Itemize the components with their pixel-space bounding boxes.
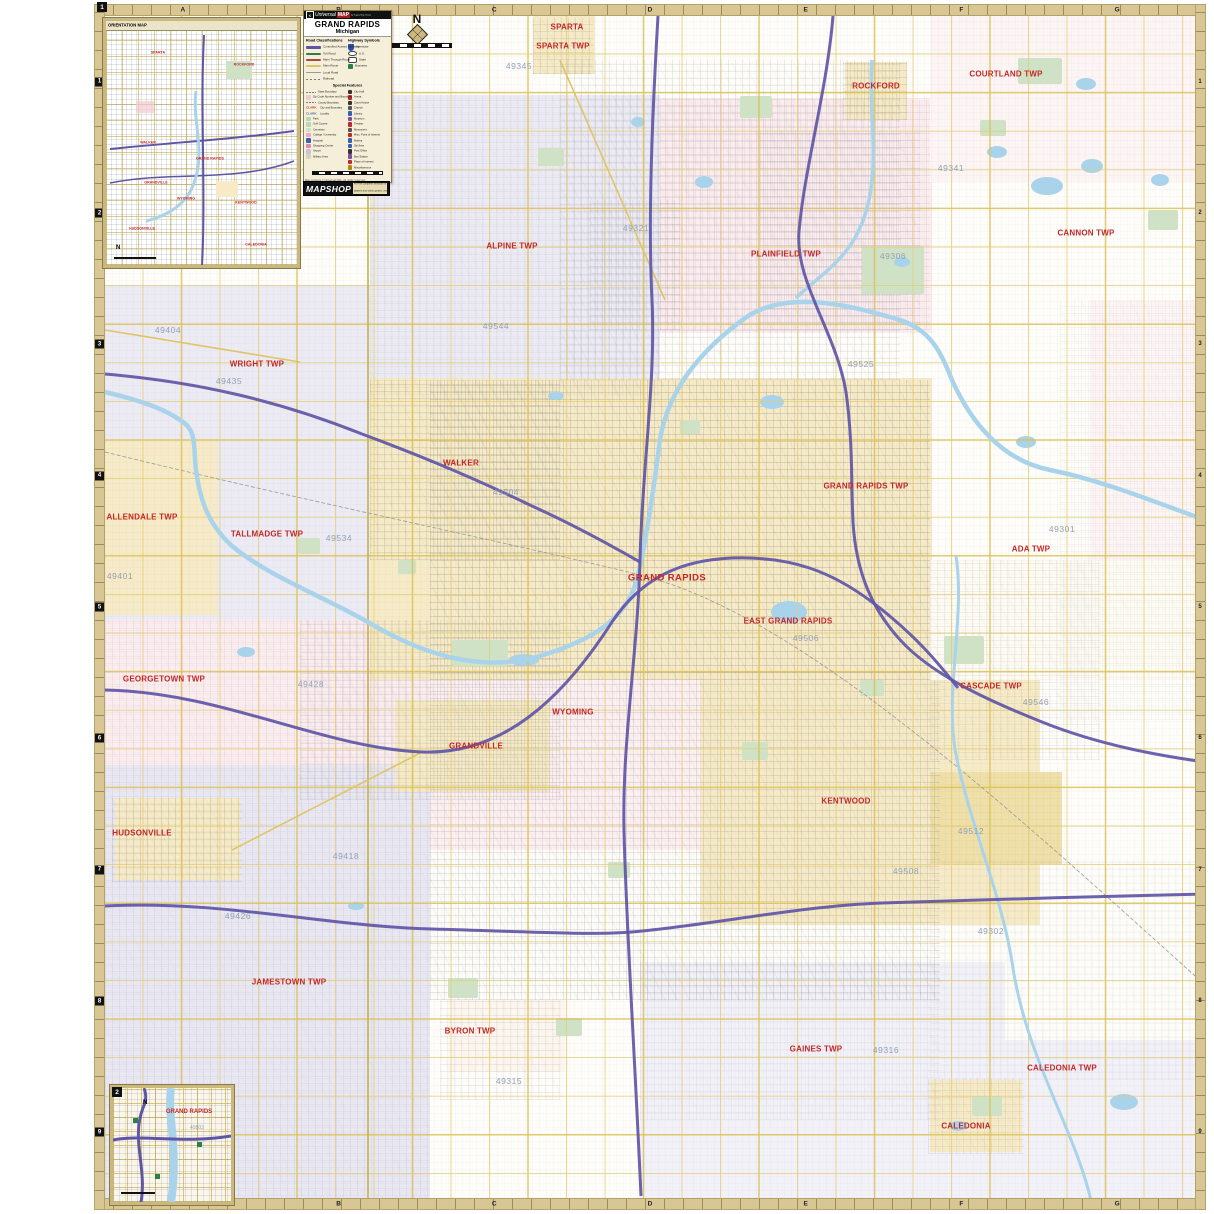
special-feature-label: Marina — [354, 139, 362, 142]
feature-chip — [348, 133, 353, 138]
feature-chip — [348, 101, 353, 106]
zip-label: 49401 — [107, 571, 133, 581]
feature-chip — [348, 128, 353, 133]
mapshop-bar: MAPSHOP For the complete selection of ma… — [303, 181, 390, 196]
feature-chip — [348, 160, 353, 165]
feature-chip — [348, 138, 353, 143]
road-swatch — [306, 53, 321, 55]
feature-chip — [306, 154, 311, 159]
feature-chip — [306, 149, 311, 154]
place-label: HUDSONVILLE — [112, 829, 172, 838]
grid-number: 9 — [1198, 1129, 1201, 1135]
brand-tagline: by Kappa Map Group — [351, 14, 371, 17]
road-class-row: Railroad — [306, 76, 348, 82]
orientation-place-label: SPARTA — [151, 51, 165, 55]
downtown-scale-bar — [121, 1192, 155, 1194]
grid-letter: F — [959, 7, 963, 14]
grid-letter: D — [648, 1201, 653, 1208]
road-class-label: Main Through Route — [323, 58, 350, 61]
grid-number: 7 — [1198, 867, 1201, 873]
roads-header: Road Classifications — [306, 39, 332, 43]
grand-river — [105, 302, 1205, 663]
compass-rose-icon — [406, 24, 427, 45]
special-feature-label: Theater — [354, 123, 363, 126]
grid-number: 2 — [1198, 210, 1201, 216]
freeway-i96-west — [105, 374, 640, 562]
zip-label: 49302 — [978, 926, 1004, 936]
place-label: CALEDONIA — [941, 1122, 990, 1131]
grid-letter: E — [804, 1201, 808, 1208]
special-feature-label: Ski Area — [354, 145, 364, 148]
grid-number: 1 — [1198, 79, 1201, 85]
special-feature-label: Bus Station — [354, 155, 368, 158]
orientation-place-label: WALKER — [140, 141, 156, 145]
feature-chip — [348, 154, 353, 159]
zip-label: 49426 — [225, 911, 251, 921]
special-feature-label: Library — [354, 112, 362, 115]
special-features-right: City HallArenaCourt HouseChurchLibraryMu… — [348, 89, 390, 170]
orientation-scale-bar — [114, 257, 156, 259]
grid-letter: C — [492, 7, 497, 14]
highway-symbol-label: U.S. — [359, 52, 365, 55]
sample-name-chip: CLARK — [306, 112, 312, 115]
inset-tab-1: 1 — [97, 2, 107, 12]
grid-number: 6 — [1198, 735, 1201, 741]
place-label: ALLENDALE TWP — [106, 513, 177, 522]
zip-label: 49534 — [326, 533, 352, 543]
road-class-label: Local Road — [323, 71, 338, 74]
feature-chip — [306, 138, 311, 143]
special-feature-label: Zip Code Number and Boundary — [313, 96, 352, 99]
road-swatch — [306, 65, 321, 67]
orientation-inset-title: ORIENTATION MAP — [108, 23, 147, 27]
zip-label: 49418 — [333, 851, 359, 861]
special-feature-label: Place of Interest — [354, 161, 374, 164]
zip-label: 49546 — [1023, 697, 1049, 707]
zip-label: 49508 — [893, 866, 919, 876]
zip-label: 49306 — [880, 251, 906, 261]
mapshop-info-line: For the complete selection of maps, — [354, 183, 367, 186]
grid-number: 8 — [1198, 998, 1201, 1004]
zip-label: 49301 — [1049, 524, 1075, 534]
zip-label: 49345 — [506, 61, 532, 71]
special-feature-label: College / University — [313, 134, 336, 137]
thornapple-river — [952, 556, 1092, 1205]
downtown-zip-label: 49503 — [190, 1125, 204, 1131]
grid-letter: A — [180, 7, 185, 14]
arterial-diagonal — [105, 330, 300, 362]
legend-title: GRAND RAPIDS Michigan — [304, 19, 391, 37]
feature-chip — [348, 144, 353, 149]
place-label: ROCKFORD — [852, 82, 900, 91]
feature-chip — [348, 117, 353, 122]
orientation-place-label: HUDSONVILLE — [129, 227, 155, 231]
map-subtitle: Michigan — [304, 29, 391, 35]
grid-number: 3 — [1198, 341, 1201, 347]
brand-name: Universal — [315, 12, 336, 18]
grid-number: 5 — [95, 603, 104, 612]
north-arrow: N — [404, 12, 430, 42]
highway-symbol-label: Business — [355, 65, 367, 68]
downtown-north: N — [143, 1100, 147, 1106]
feature-chip — [348, 90, 353, 95]
grid-letter: D — [648, 7, 653, 14]
place-label: ADA TWP — [1012, 545, 1050, 554]
grid-number: 7 — [95, 865, 104, 874]
grid-number: 9 — [95, 1128, 104, 1137]
special-feature-label: Museum — [354, 118, 364, 121]
place-label: GRANDVILLE — [449, 742, 503, 751]
special-feature-label: Shopping Center — [313, 145, 333, 148]
sample-name-chip: CLARK — [306, 107, 312, 110]
orientation-place-label: KENTWOOD — [235, 201, 256, 205]
feature-chip — [348, 122, 353, 127]
grid-number: 4 — [95, 471, 104, 480]
zip-label: 49316 — [873, 1045, 899, 1055]
place-label: GAINES TWP — [790, 1045, 843, 1054]
orientation-place-label: GRANDVILLE — [144, 181, 167, 185]
mapshop-info-line: atlases and travel guides, visit — [354, 190, 367, 193]
special-feature-label: Park — [313, 118, 319, 121]
place-label: WRIGHT TWP — [230, 360, 284, 369]
place-label: GEORGETOWN TWP — [123, 675, 205, 684]
feature-chip — [306, 122, 311, 127]
orientation-inset-header: ORIENTATION MAP — [106, 21, 297, 31]
brand-map: MAP — [337, 12, 350, 18]
orientation-inset: ORIENTATION MAP SPARTAROCKFORDWALKERGRAN… — [103, 18, 300, 268]
zip-label: 49435 — [216, 376, 242, 386]
special-feature-row: Military Area — [306, 154, 348, 159]
special-feature-label: Church — [354, 107, 363, 110]
orientation-place-label: WYOMING — [177, 197, 195, 201]
boundary-chip — [306, 102, 316, 103]
place-label: CASCADE TWP — [960, 682, 1022, 691]
special-feature-label: Monument — [354, 128, 367, 131]
place-label: BYRON TWP — [445, 1027, 496, 1036]
orientation-place-label: ROCKFORD — [234, 63, 255, 67]
place-label: PLAINFIELD TWP — [751, 250, 821, 259]
symbols-header: Highway Symbols — [348, 39, 374, 43]
zip-label: 49506 — [793, 633, 819, 643]
place-label: TALLMADGE TWP — [231, 530, 303, 539]
zip-label: 49315 — [496, 1076, 522, 1086]
special-features-header: Special Features — [321, 84, 375, 88]
orientation-place-label: GRAND RAPIDS — [196, 157, 224, 161]
road-classification-list: Controlled Access HighwayToll RoadMain T… — [306, 44, 348, 82]
zip-label: 49404 — [155, 325, 181, 335]
grid-number: 8 — [95, 997, 104, 1006]
boundary-chip — [306, 92, 316, 93]
place-label: KENTWOOD — [821, 797, 870, 806]
road-class-label: Controlled Access Highway — [323, 46, 359, 49]
road-class-label: Railroad — [323, 78, 334, 81]
special-feature-label: Post Office — [354, 150, 367, 153]
feature-chip — [348, 106, 353, 111]
feature-chip — [306, 128, 311, 133]
grid-letter: G — [1115, 1201, 1120, 1208]
highway-symbol-row: Business — [348, 63, 390, 69]
arterial-diagonal — [232, 752, 422, 850]
grid-number: 5 — [1198, 604, 1201, 610]
place-label: CANNON TWP — [1057, 229, 1114, 238]
map-sheet: SPARTA TWPSPARTAROCKFORDCOURTLAND TWPCAN… — [0, 0, 1214, 1214]
downtown-city-label: GRAND RAPIDS — [166, 1109, 212, 1115]
zip-label: 49321 — [623, 223, 649, 233]
special-feature-label: County Boundary — [318, 101, 339, 104]
grid-letter: E — [804, 7, 808, 14]
place-label: EAST GRAND RAPIDS — [744, 617, 833, 626]
feature-chip — [348, 111, 353, 116]
special-feature-label: Misc. Point of Interest — [354, 134, 380, 137]
downtown-inset-map: GRAND RAPIDS 49503 N — [113, 1088, 231, 1202]
zip-label: 49428 — [298, 679, 324, 689]
feature-chip — [306, 133, 311, 138]
feature-chip — [306, 117, 311, 122]
legend-panel: K Universal MAP by Kappa Map Group GRAND… — [303, 10, 392, 183]
special-feature-label: Locality — [320, 112, 329, 115]
highway-symbol-label: Interstate — [356, 46, 369, 49]
special-feature-label: Military Area — [313, 155, 328, 158]
u-s--shield-icon — [348, 51, 357, 57]
special-feature-label: Hospital — [313, 139, 323, 142]
place-label: COURTLAND TWP — [969, 70, 1042, 79]
special-features-left: State BoundaryZip Code Number and Bounda… — [306, 89, 348, 170]
special-feature-label: Arena — [354, 96, 361, 99]
special-feature-label: City and Boundary — [320, 107, 342, 110]
place-label: CALEDONIA TWP — [1027, 1064, 1097, 1073]
road-swatch — [306, 79, 321, 80]
special-feature-label: State Boundary — [318, 91, 337, 94]
orientation-north: N — [116, 245, 120, 251]
road-swatch — [306, 46, 321, 49]
kappa-logo-icon: K — [306, 11, 314, 19]
road-swatch — [306, 72, 321, 73]
orientation-inset-map: SPARTAROCKFORDWALKERGRAND RAPIDSGRANDVIL… — [106, 31, 297, 265]
special-feature-label: Airport — [313, 150, 321, 153]
zip-label: 49525 — [848, 359, 874, 369]
place-label: SPARTA — [551, 23, 584, 32]
legend-scale-bar — [312, 171, 383, 175]
special-feature-label: Miscellaneous — [354, 166, 371, 169]
road-swatch — [306, 59, 321, 61]
downtown-inset: GRAND RAPIDS 49503 N — [110, 1085, 234, 1205]
grid-number: 4 — [1198, 473, 1201, 479]
grid-number: 6 — [95, 734, 104, 743]
grid-letter: G — [1115, 7, 1120, 14]
road-class-label: Main Route — [323, 65, 338, 68]
brand-bar: K Universal MAP by Kappa Map Group — [304, 11, 391, 19]
zip-label: 49544 — [483, 321, 509, 331]
arterial-diagonal — [560, 60, 665, 300]
highway-symbol-label: State — [359, 58, 366, 61]
feature-chip — [348, 149, 353, 154]
map-title: GRAND RAPIDS — [304, 20, 391, 29]
place-label: WYOMING — [552, 708, 593, 717]
feature-chip — [348, 165, 353, 170]
feature-chip — [306, 144, 311, 149]
grid-letter: F — [959, 1201, 963, 1208]
special-feature-row: Miscellaneous — [348, 165, 390, 170]
special-feature-label: Cemetery — [313, 128, 325, 131]
mapshop-logo: MAPSHOP — [306, 184, 351, 194]
place-label: GRAND RAPIDS — [628, 573, 706, 584]
zip-label: 49512 — [958, 826, 984, 836]
zip-label: 49504 — [493, 487, 519, 497]
special-feature-label: Golf Course — [313, 123, 327, 126]
zip-label: 49341 — [938, 163, 964, 173]
mapshop-info: For the complete selection of maps,atlas… — [353, 183, 387, 194]
road-class-label: Toll Road — [323, 52, 336, 55]
place-label: SPARTA TWP — [536, 42, 589, 51]
grid-letter: C — [492, 1201, 497, 1208]
special-feature-label: Court House — [354, 101, 369, 104]
grid-number: 3 — [95, 340, 104, 349]
scale-bar — [392, 43, 452, 48]
feature-chip — [306, 95, 311, 100]
special-feature-label: City Hall — [354, 91, 364, 94]
orientation-place-label: CALEDONIA — [245, 243, 266, 247]
place-label: ALPINE TWP — [486, 242, 537, 251]
business-shield-icon — [348, 64, 354, 70]
place-label: WALKER — [443, 459, 479, 468]
freeway-m6 — [105, 894, 1205, 933]
place-label: GRAND RAPIDS TWP — [824, 482, 909, 491]
grid-letter: B — [336, 1201, 341, 1208]
inset-tab-2: 2 — [112, 1087, 122, 1097]
freeway-i196 — [105, 558, 958, 752]
place-label: JAMESTOWN TWP — [252, 978, 326, 987]
